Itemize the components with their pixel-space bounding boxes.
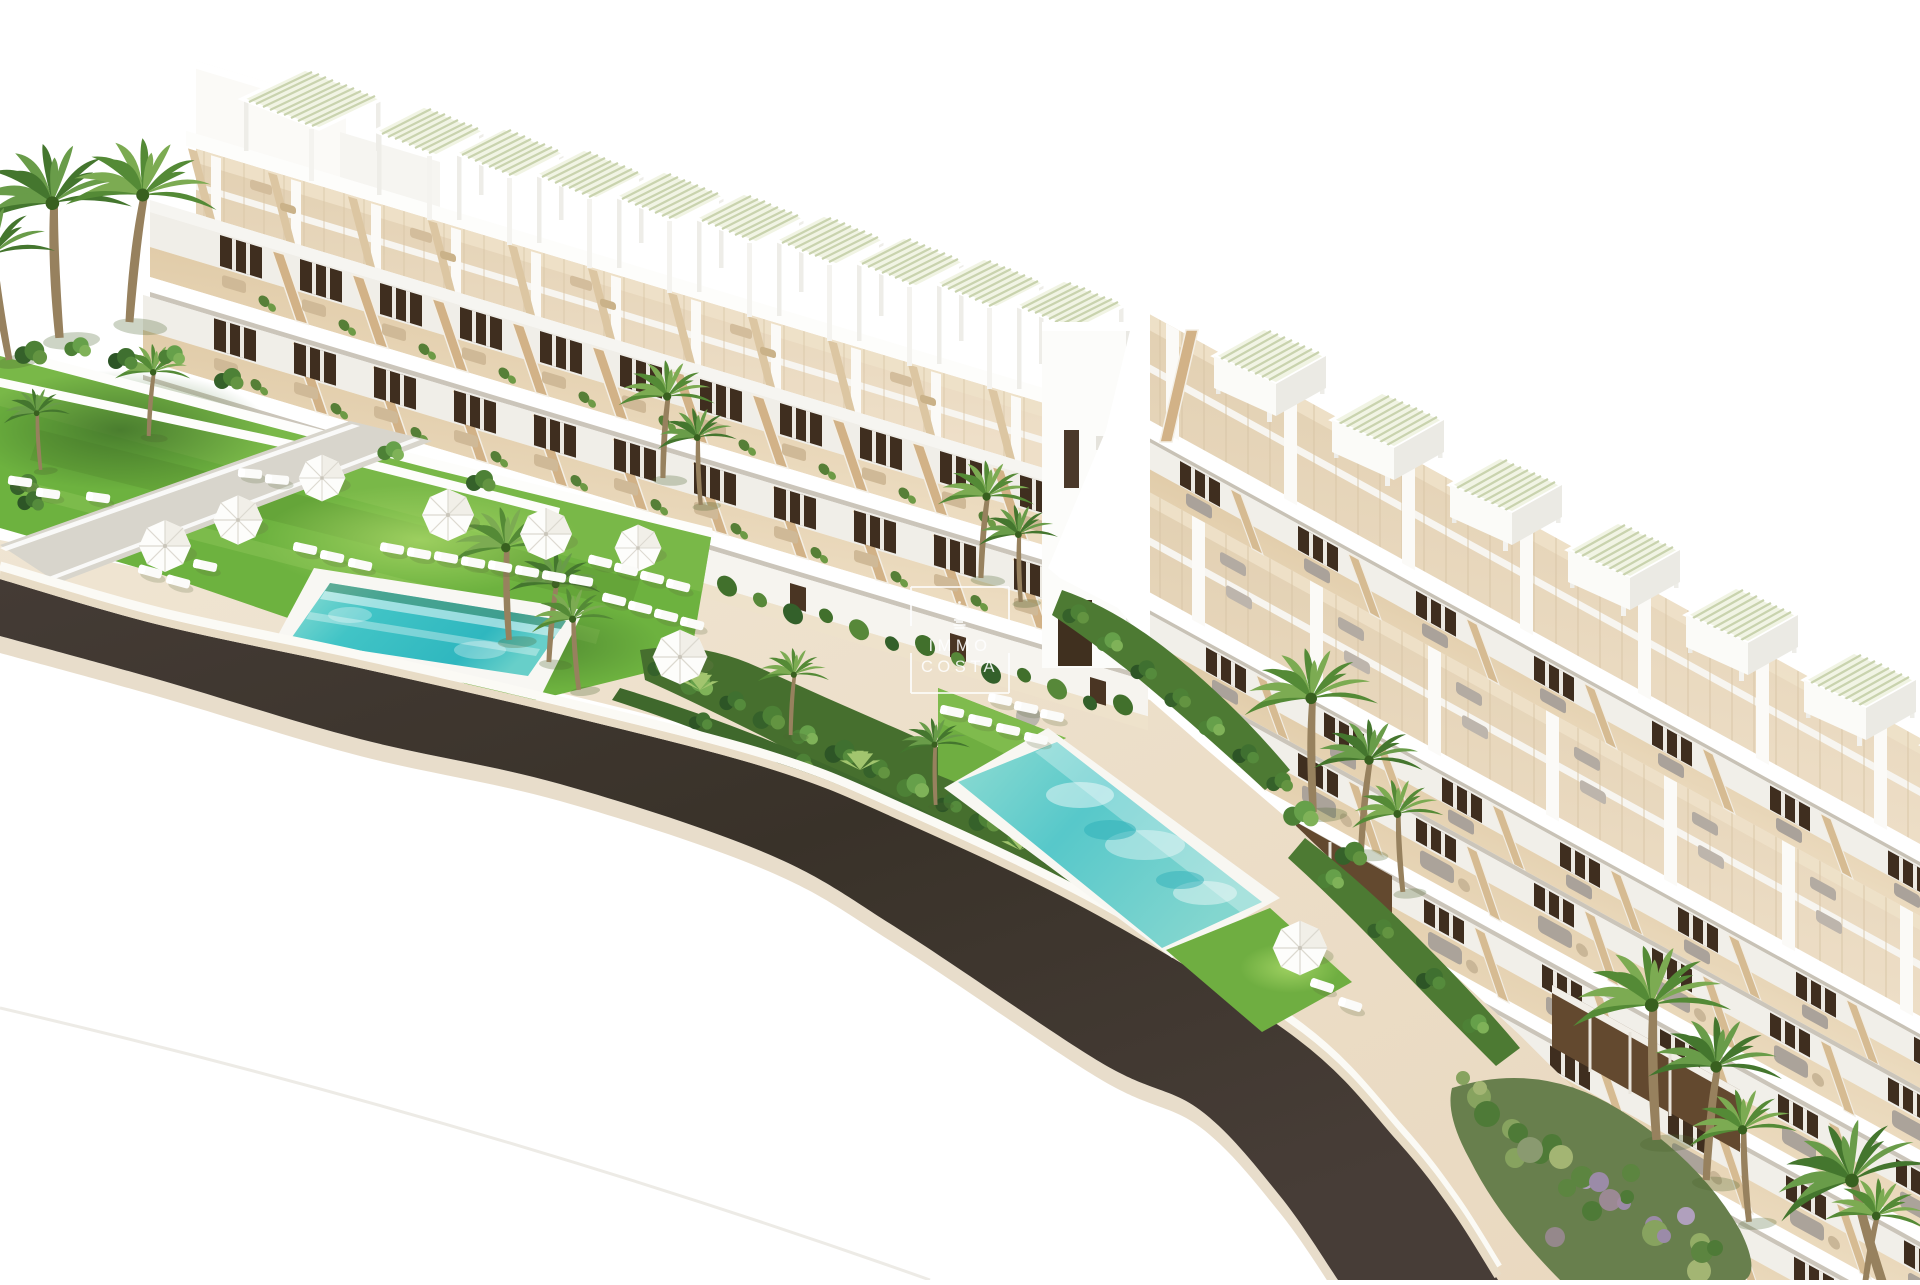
svg-text:COSTA: COSTA [921, 658, 999, 676]
svg-text:IMMO: IMMO [929, 637, 992, 655]
